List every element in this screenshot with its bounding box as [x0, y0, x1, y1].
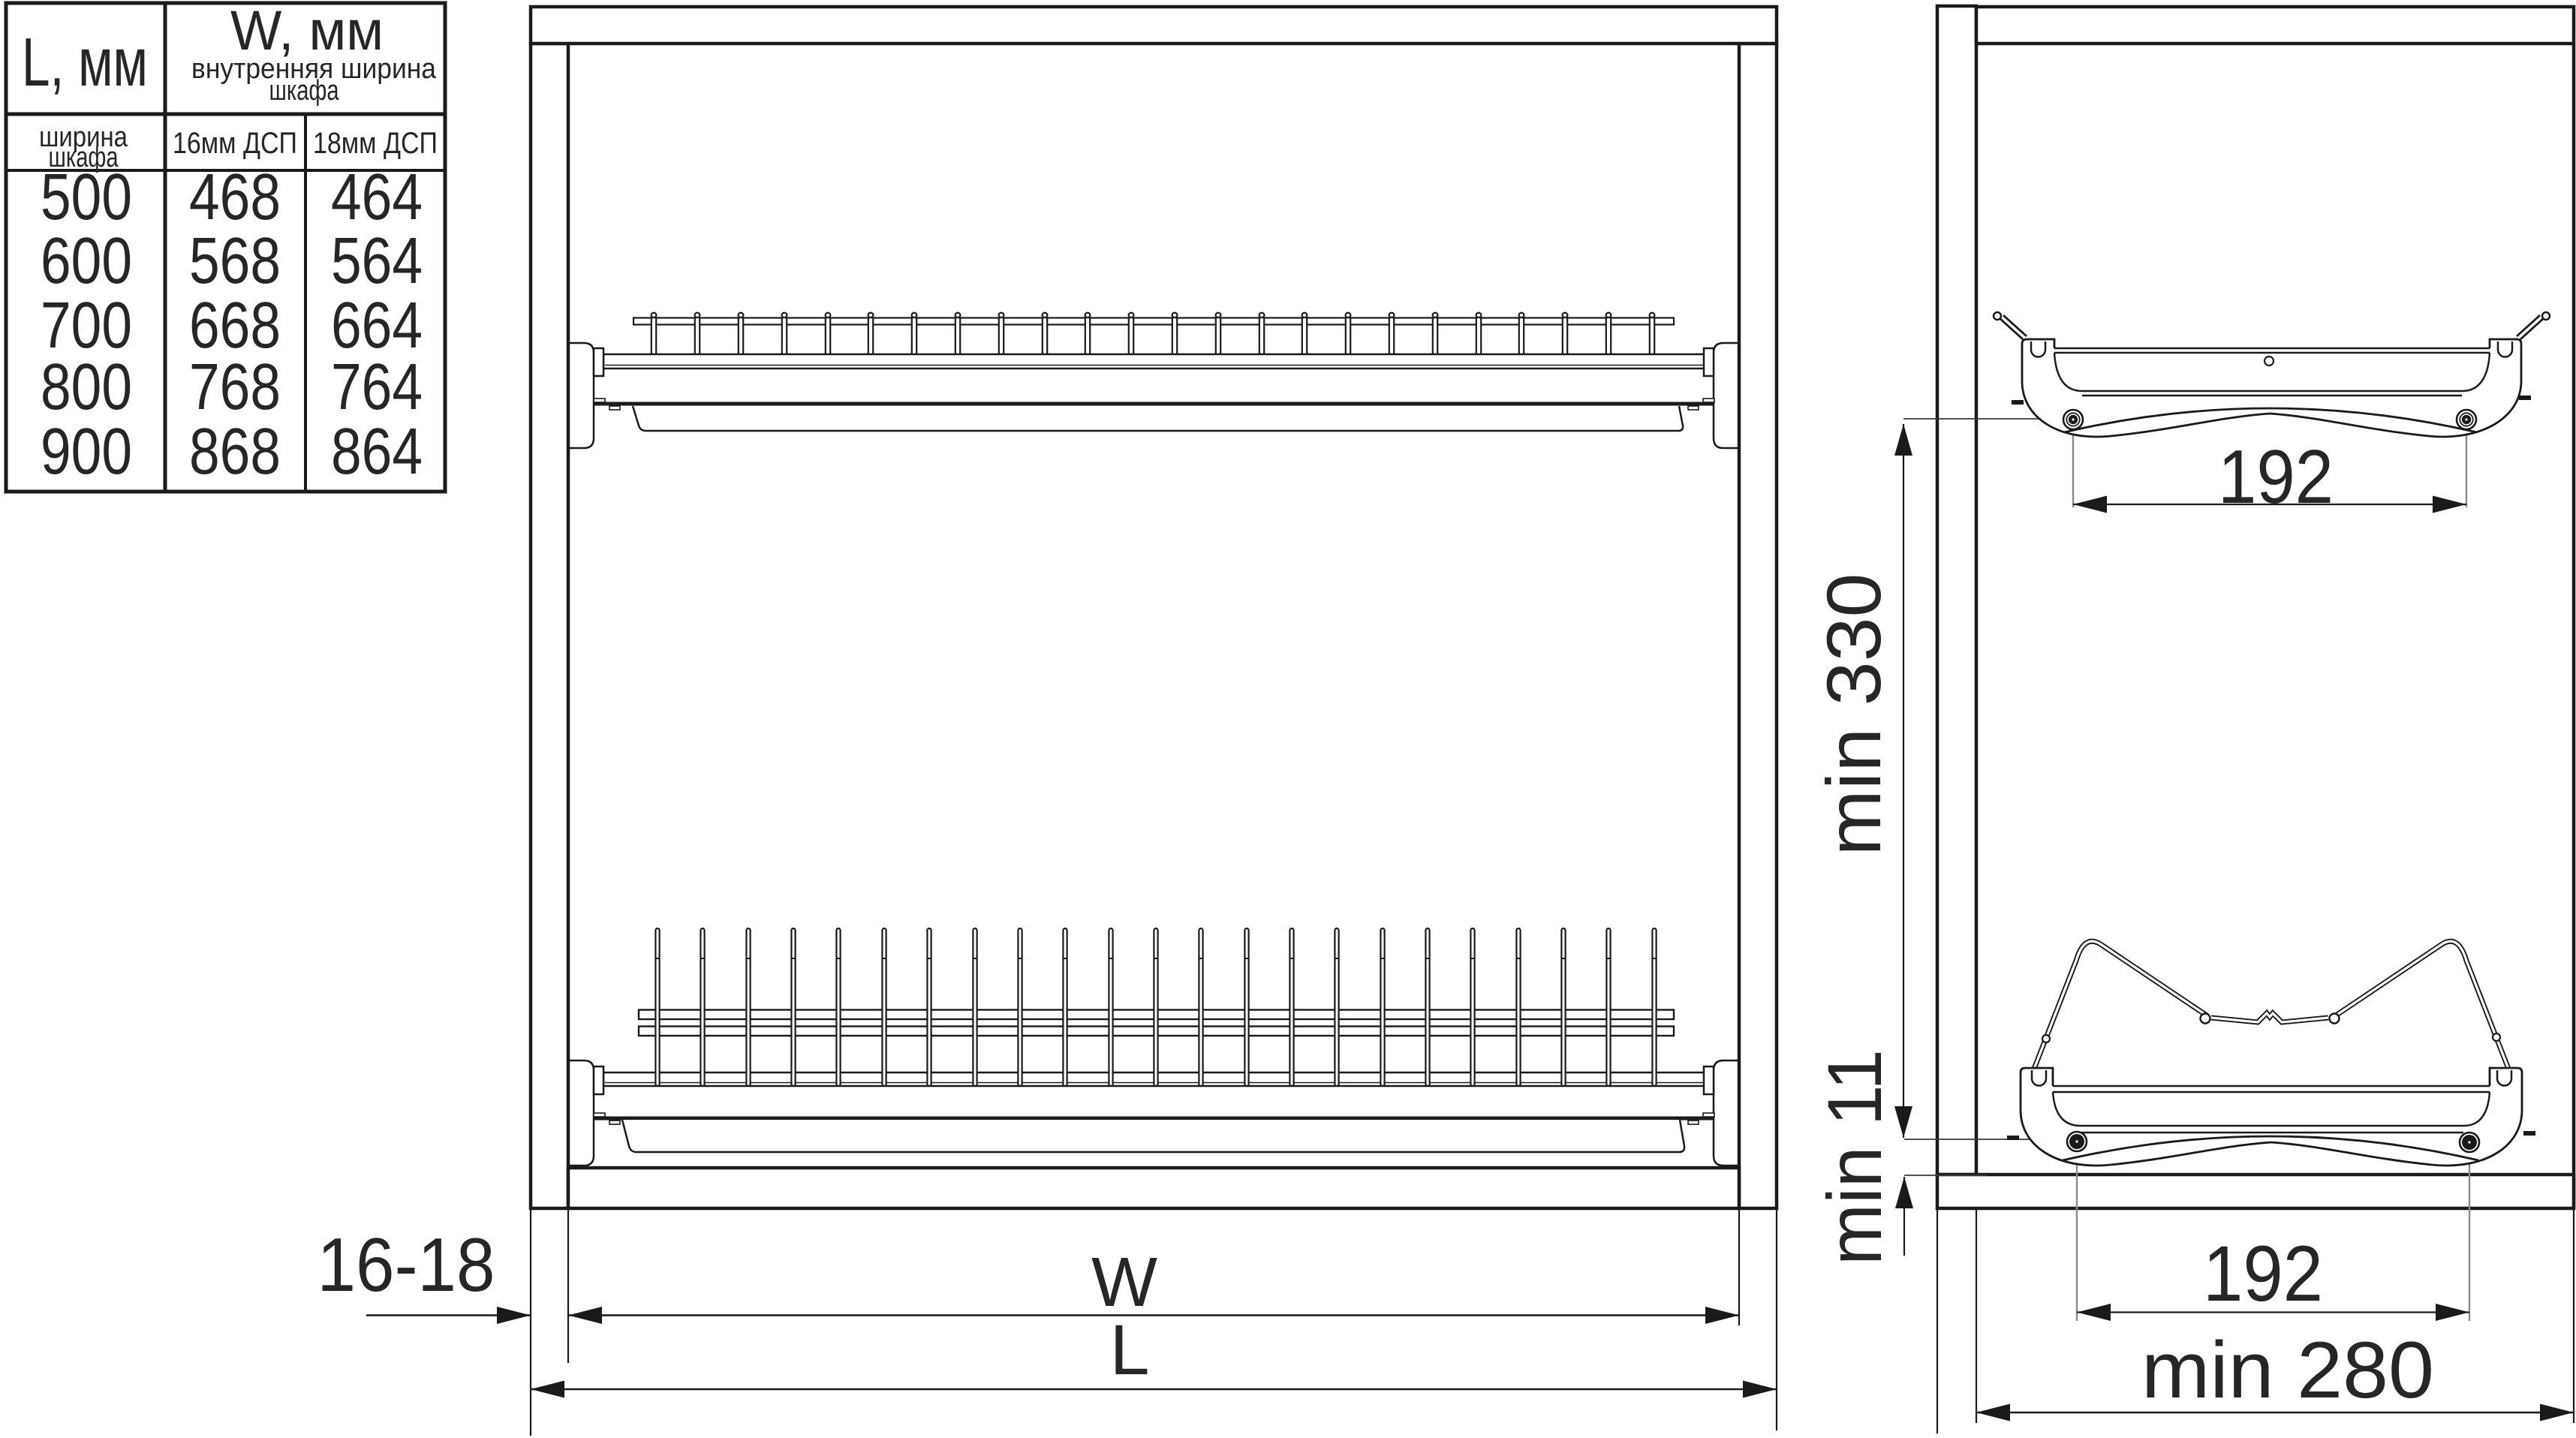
svg-text:W: W — [1091, 1243, 1157, 1321]
svg-text:min 11: min 11 — [1812, 1049, 1897, 1265]
svg-text:868: 868 — [189, 415, 281, 488]
svg-text:L, мм: L, мм — [22, 25, 148, 101]
svg-text:864: 864 — [331, 415, 423, 488]
svg-text:W, мм: W, мм — [230, 0, 384, 62]
svg-text:16-18: 16-18 — [317, 1223, 495, 1307]
svg-text:600: 600 — [41, 224, 132, 297]
svg-text:min 280: min 280 — [2141, 1325, 2434, 1415]
svg-text:468: 468 — [189, 161, 281, 233]
svg-text:464: 464 — [331, 161, 423, 233]
svg-text:764: 764 — [331, 350, 423, 423]
svg-text:шкафа: шкафа — [269, 75, 340, 107]
svg-text:500: 500 — [41, 161, 132, 233]
svg-text:16мм ДСП: 16мм ДСП — [173, 127, 297, 160]
svg-text:18мм ДСП: 18мм ДСП — [313, 127, 438, 160]
svg-text:192: 192 — [2218, 435, 2334, 519]
svg-text:564: 564 — [331, 224, 423, 297]
svg-text:192: 192 — [2203, 1230, 2323, 1318]
svg-text:900: 900 — [41, 415, 132, 488]
svg-text:800: 800 — [41, 350, 132, 423]
svg-text:min 330: min 330 — [1811, 573, 1897, 856]
svg-text:568: 568 — [189, 224, 281, 297]
svg-text:768: 768 — [189, 350, 281, 423]
svg-text:L: L — [1110, 1310, 1150, 1390]
